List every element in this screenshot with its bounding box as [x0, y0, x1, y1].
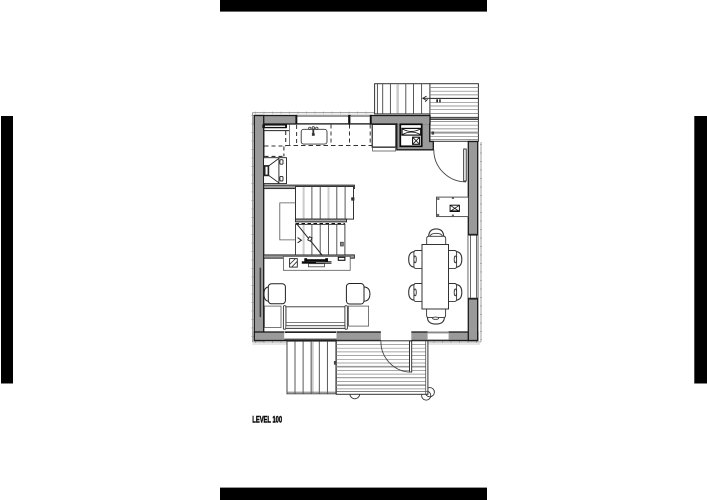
- svg-text:LEVEL 100: LEVEL 100: [252, 414, 282, 425]
